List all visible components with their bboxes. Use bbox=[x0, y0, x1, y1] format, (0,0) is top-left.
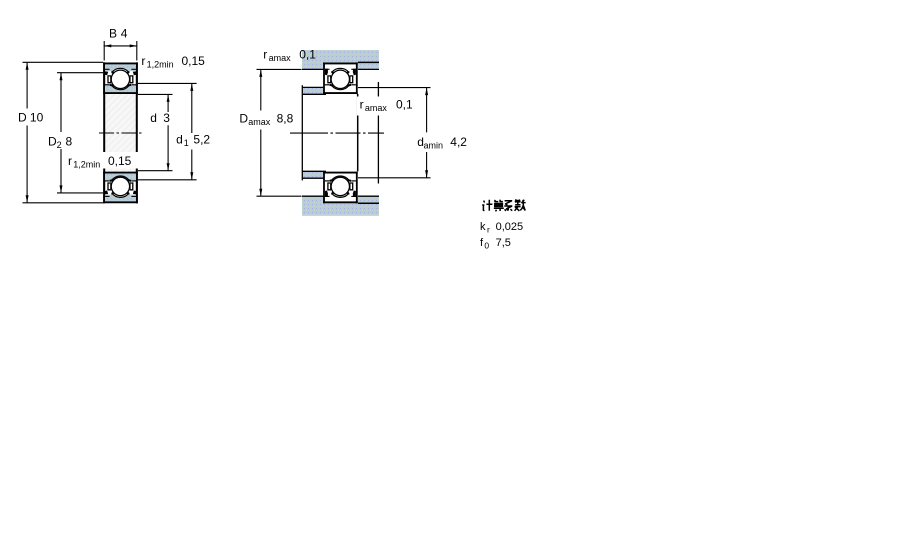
svg-text:D10: D10 bbox=[18, 111, 44, 125]
svg-text:d15,2: d15,2 bbox=[176, 132, 210, 148]
